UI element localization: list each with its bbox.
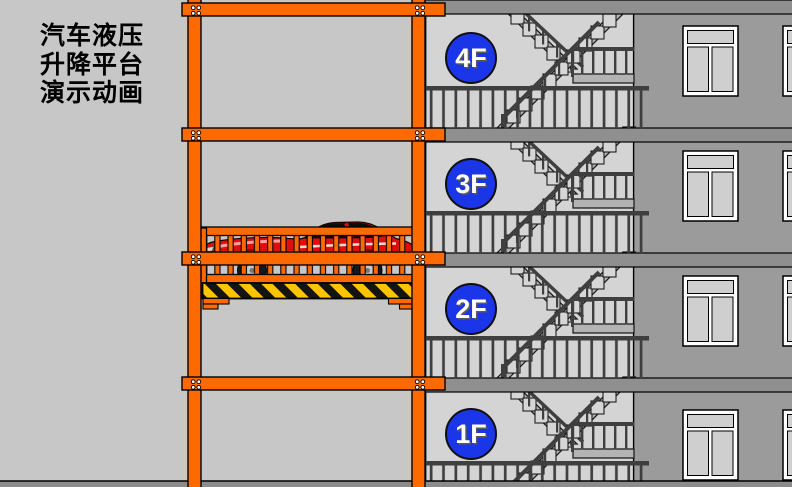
platform-bracket-right	[389, 299, 415, 310]
hazard-stripe-deck	[203, 283, 416, 299]
floor-badge-2f: 2F	[445, 283, 497, 335]
platform-bracket-left	[203, 299, 229, 310]
title-line-2: 升降平台	[24, 51, 160, 80]
ground	[0, 481, 792, 487]
title-line-1: 汽车液压	[24, 22, 160, 51]
floor-slab-3f	[425, 253, 792, 267]
lift-platform	[198, 227, 422, 309]
window	[683, 410, 738, 480]
guard-railing-2f	[425, 336, 649, 379]
window	[783, 26, 792, 96]
floor-badge-4f: 4F	[445, 32, 497, 84]
frame-column-left	[188, 0, 201, 487]
frame-beam-3f	[182, 128, 445, 141]
frame-beam-2f	[182, 252, 445, 265]
window	[783, 410, 792, 480]
roof-slab	[425, 0, 792, 14]
frame-column-right	[412, 0, 425, 487]
window	[683, 26, 738, 96]
frame-beam-1f	[182, 377, 445, 390]
window	[783, 276, 792, 346]
floor-badge-1f: 1F	[445, 408, 497, 460]
title-line-3: 演示动画	[24, 79, 160, 108]
window	[783, 151, 792, 221]
floor-slab-2f	[425, 378, 792, 392]
guard-railing-3f	[425, 211, 649, 254]
floor-slab-4f	[425, 128, 792, 142]
window	[683, 276, 738, 346]
guard-railing-4f	[425, 86, 649, 129]
floor-badge-3f: 3F	[445, 158, 497, 210]
platform-bottom-rail	[198, 275, 422, 284]
frame-beam-top	[182, 3, 445, 16]
lift-demo-scene: 汽车液压 升降平台 演示动画 4F 3F 2F 1F	[0, 0, 792, 487]
page-title: 汽车液压 升降平台 演示动画	[24, 22, 160, 108]
window	[683, 151, 738, 221]
platform-top-rail	[198, 227, 422, 236]
